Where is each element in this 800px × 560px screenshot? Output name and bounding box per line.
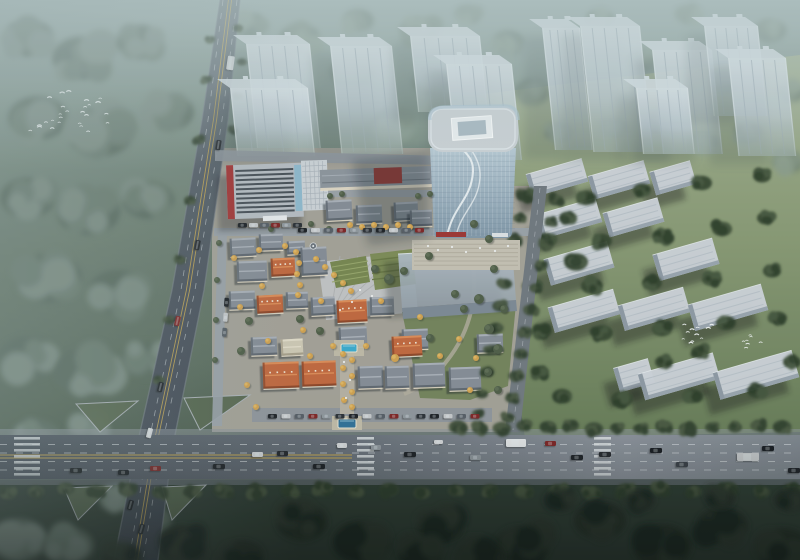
aerial-render-canvas [0,0,800,560]
masterplan-rendering [0,0,800,560]
atmosphere [0,0,800,560]
